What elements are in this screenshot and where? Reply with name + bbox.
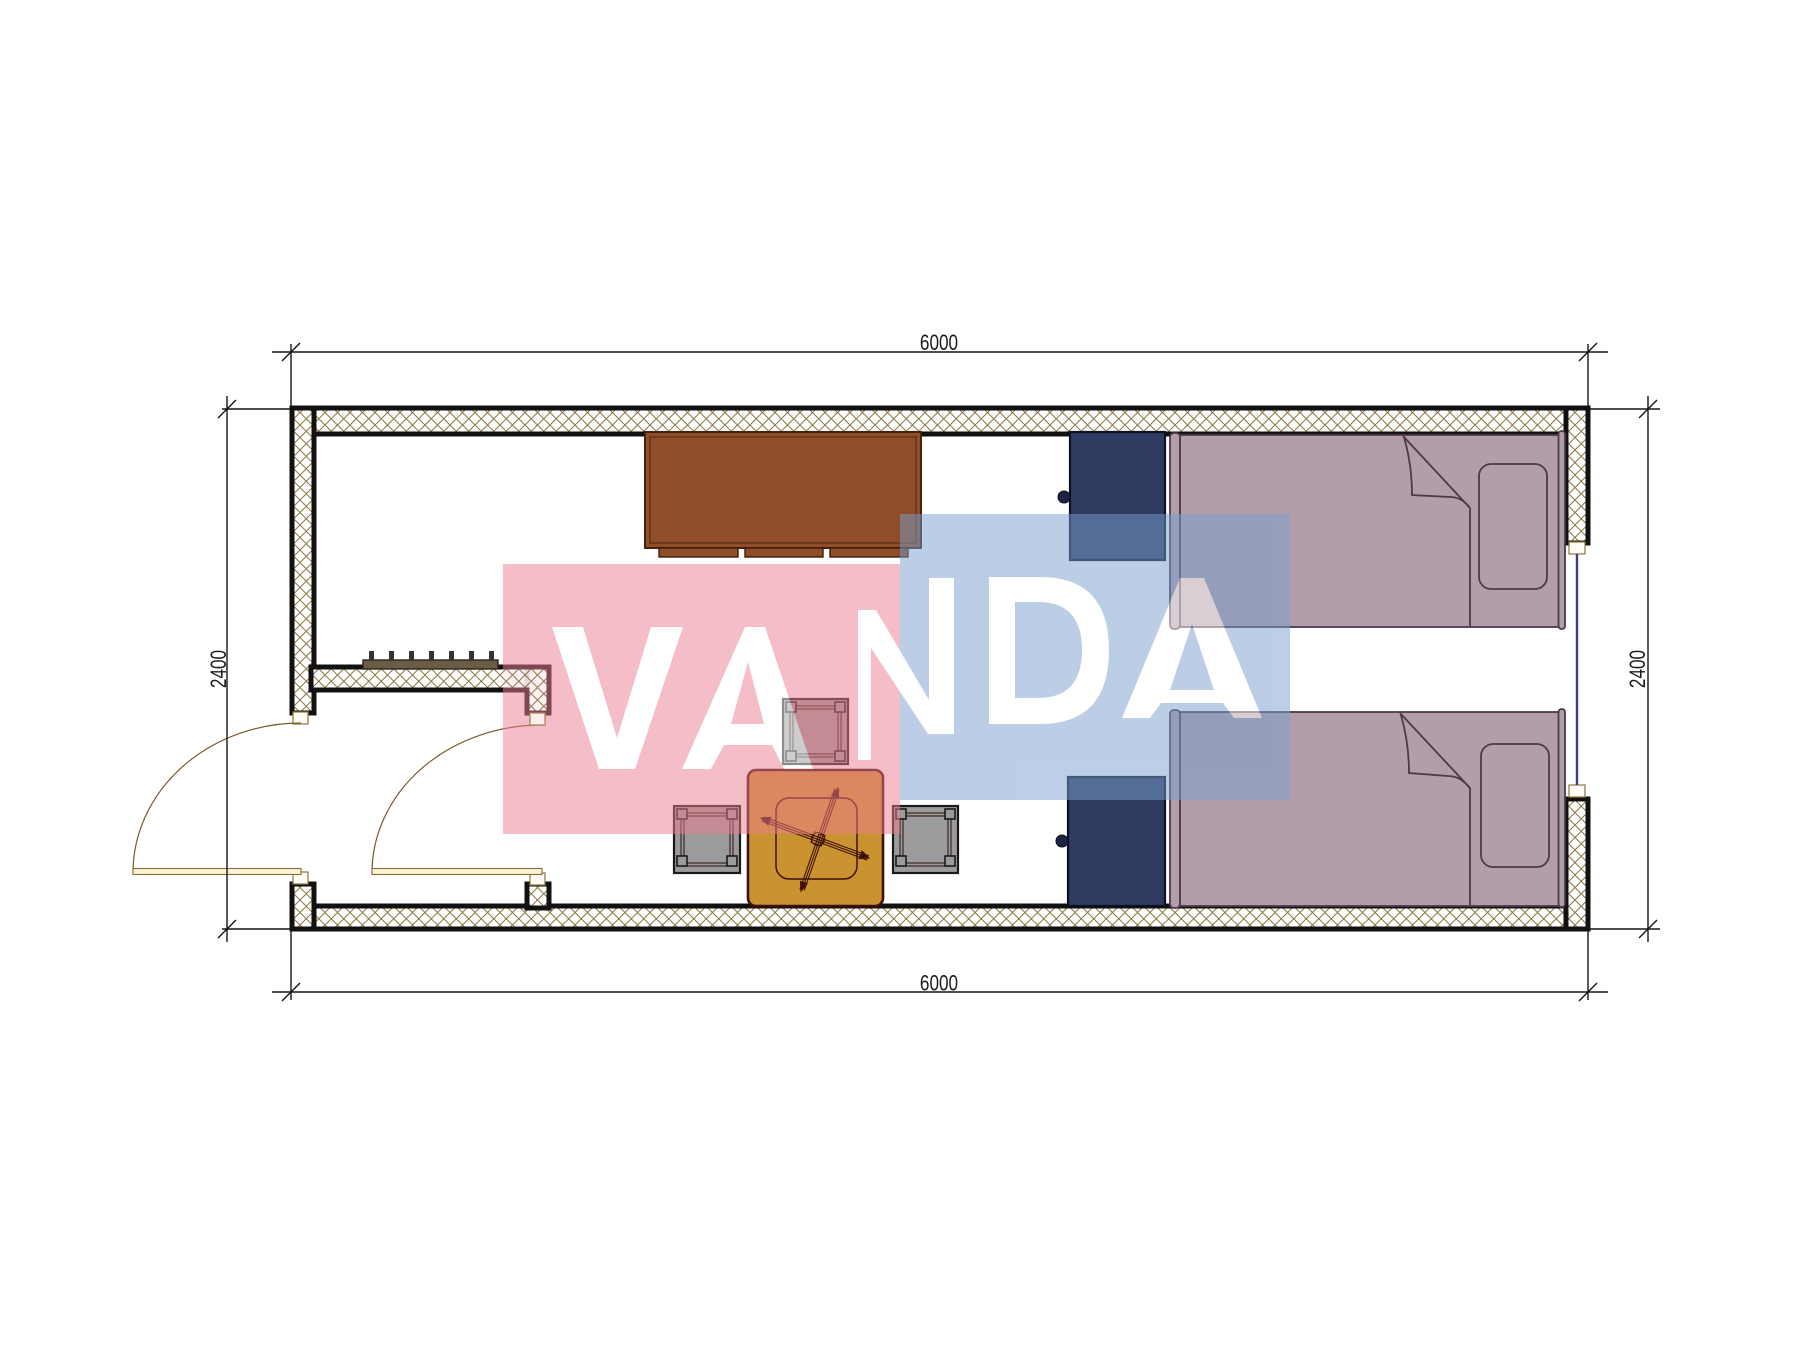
svg-text:2400: 2400 xyxy=(1626,650,1651,688)
svg-text:6000: 6000 xyxy=(920,972,958,997)
svg-text:6000: 6000 xyxy=(920,331,958,356)
svg-text:2400: 2400 xyxy=(207,650,232,688)
